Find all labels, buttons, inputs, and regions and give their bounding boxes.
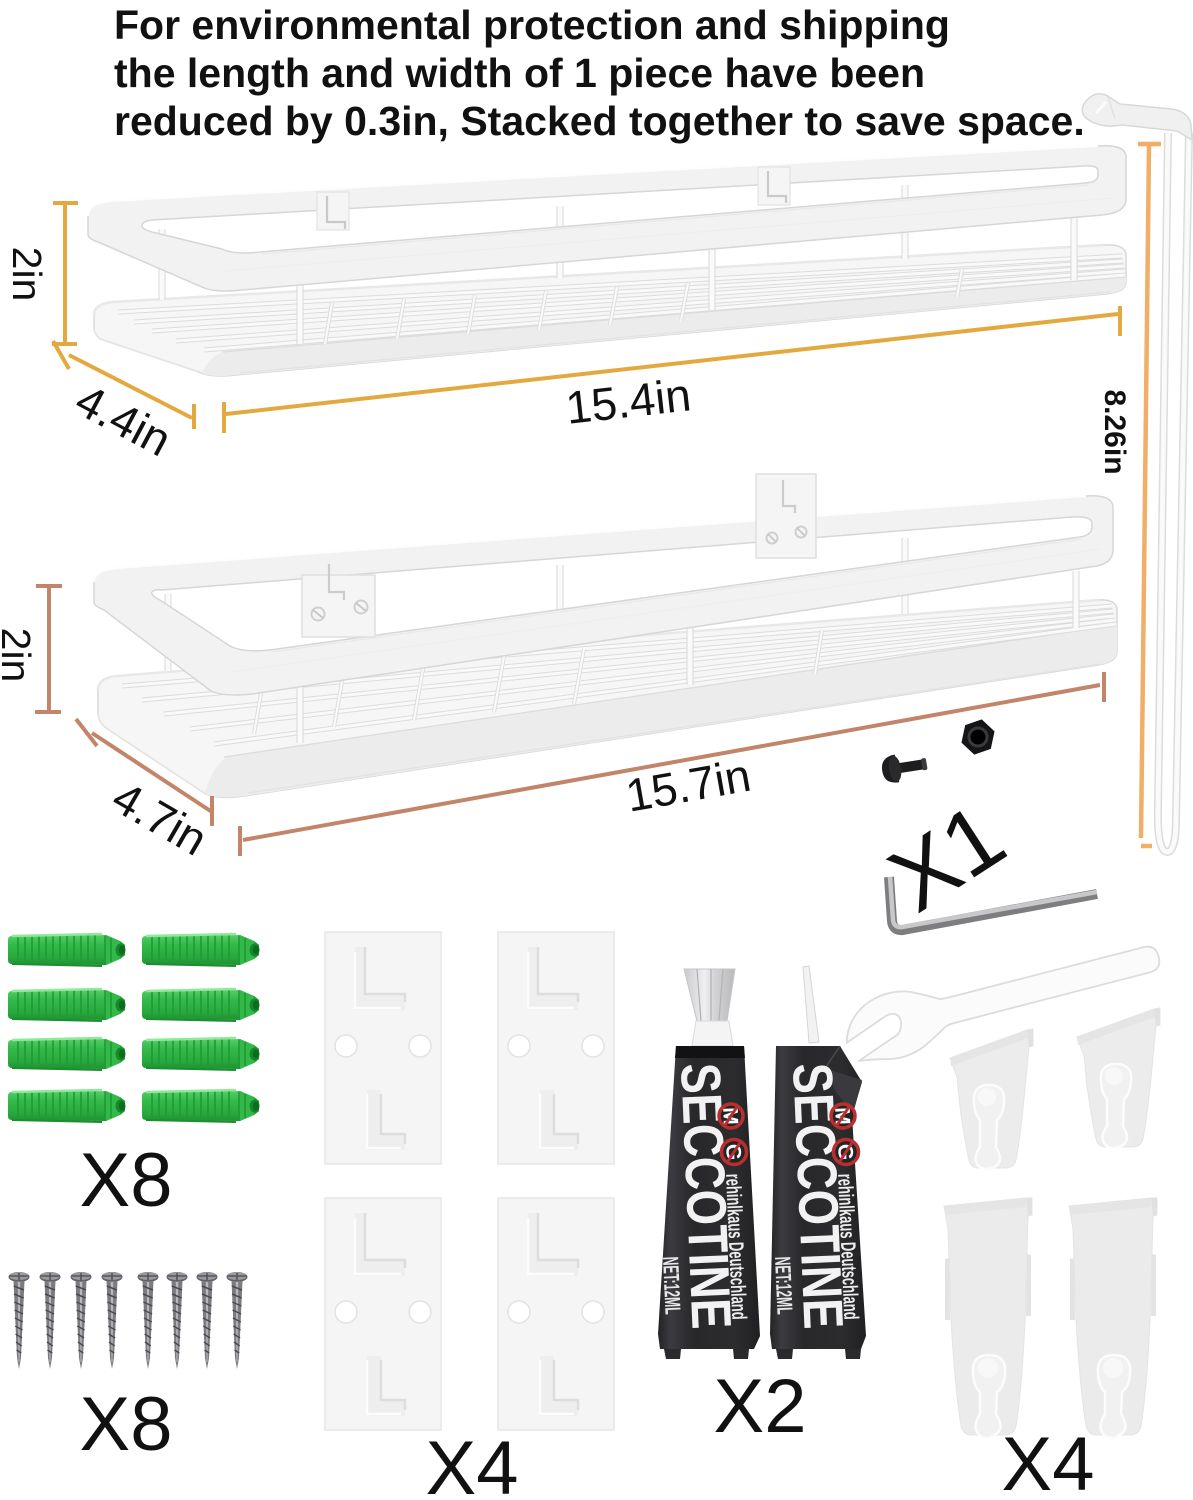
svg-text:NET:12ML: NET:12ML [658,1256,686,1315]
svg-text:reduced by 0.3in, Stacked toge: reduced by 0.3in, Stacked together to sa… [114,98,1085,144]
svg-text:X4: X4 [426,1426,519,1500]
svg-text:2in: 2in [0,628,39,683]
svg-text:X4: X4 [1002,1422,1095,1500]
svg-text:NET:12ML: NET:12ML [770,1256,798,1315]
svg-text:X8: X8 [80,1138,173,1223]
svg-text:the length and width of 1 piec: the length and width of 1 piece have bee… [114,50,925,96]
svg-text:8.26in: 8.26in [1098,389,1131,474]
svg-text:For environmental protection a: For environmental protection and shippin… [114,2,950,48]
svg-text:2in: 2in [4,247,50,302]
svg-text:X8: X8 [80,1382,173,1467]
svg-text:X2: X2 [714,1364,807,1449]
